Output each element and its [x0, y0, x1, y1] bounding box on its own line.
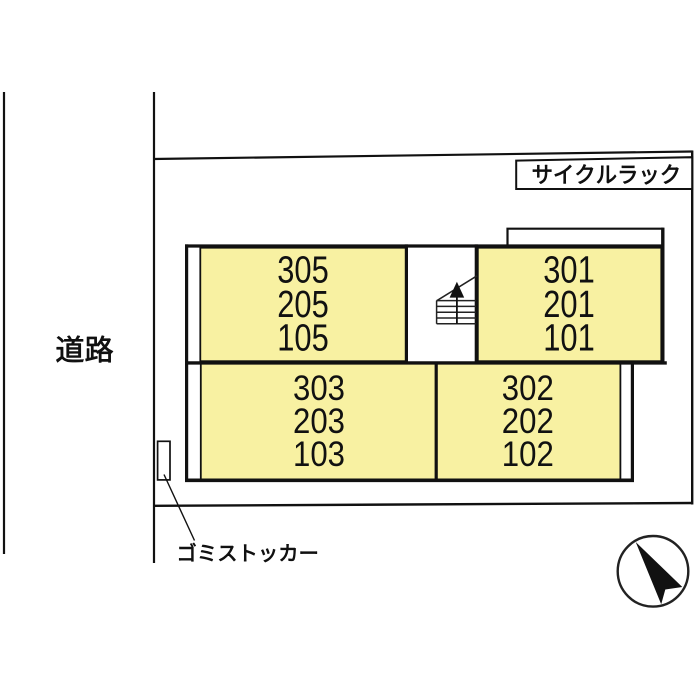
- svg-text:103: 103: [293, 434, 345, 474]
- svg-text:102: 102: [502, 434, 554, 474]
- svg-text:105: 105: [277, 316, 329, 359]
- svg-text:101: 101: [543, 316, 595, 359]
